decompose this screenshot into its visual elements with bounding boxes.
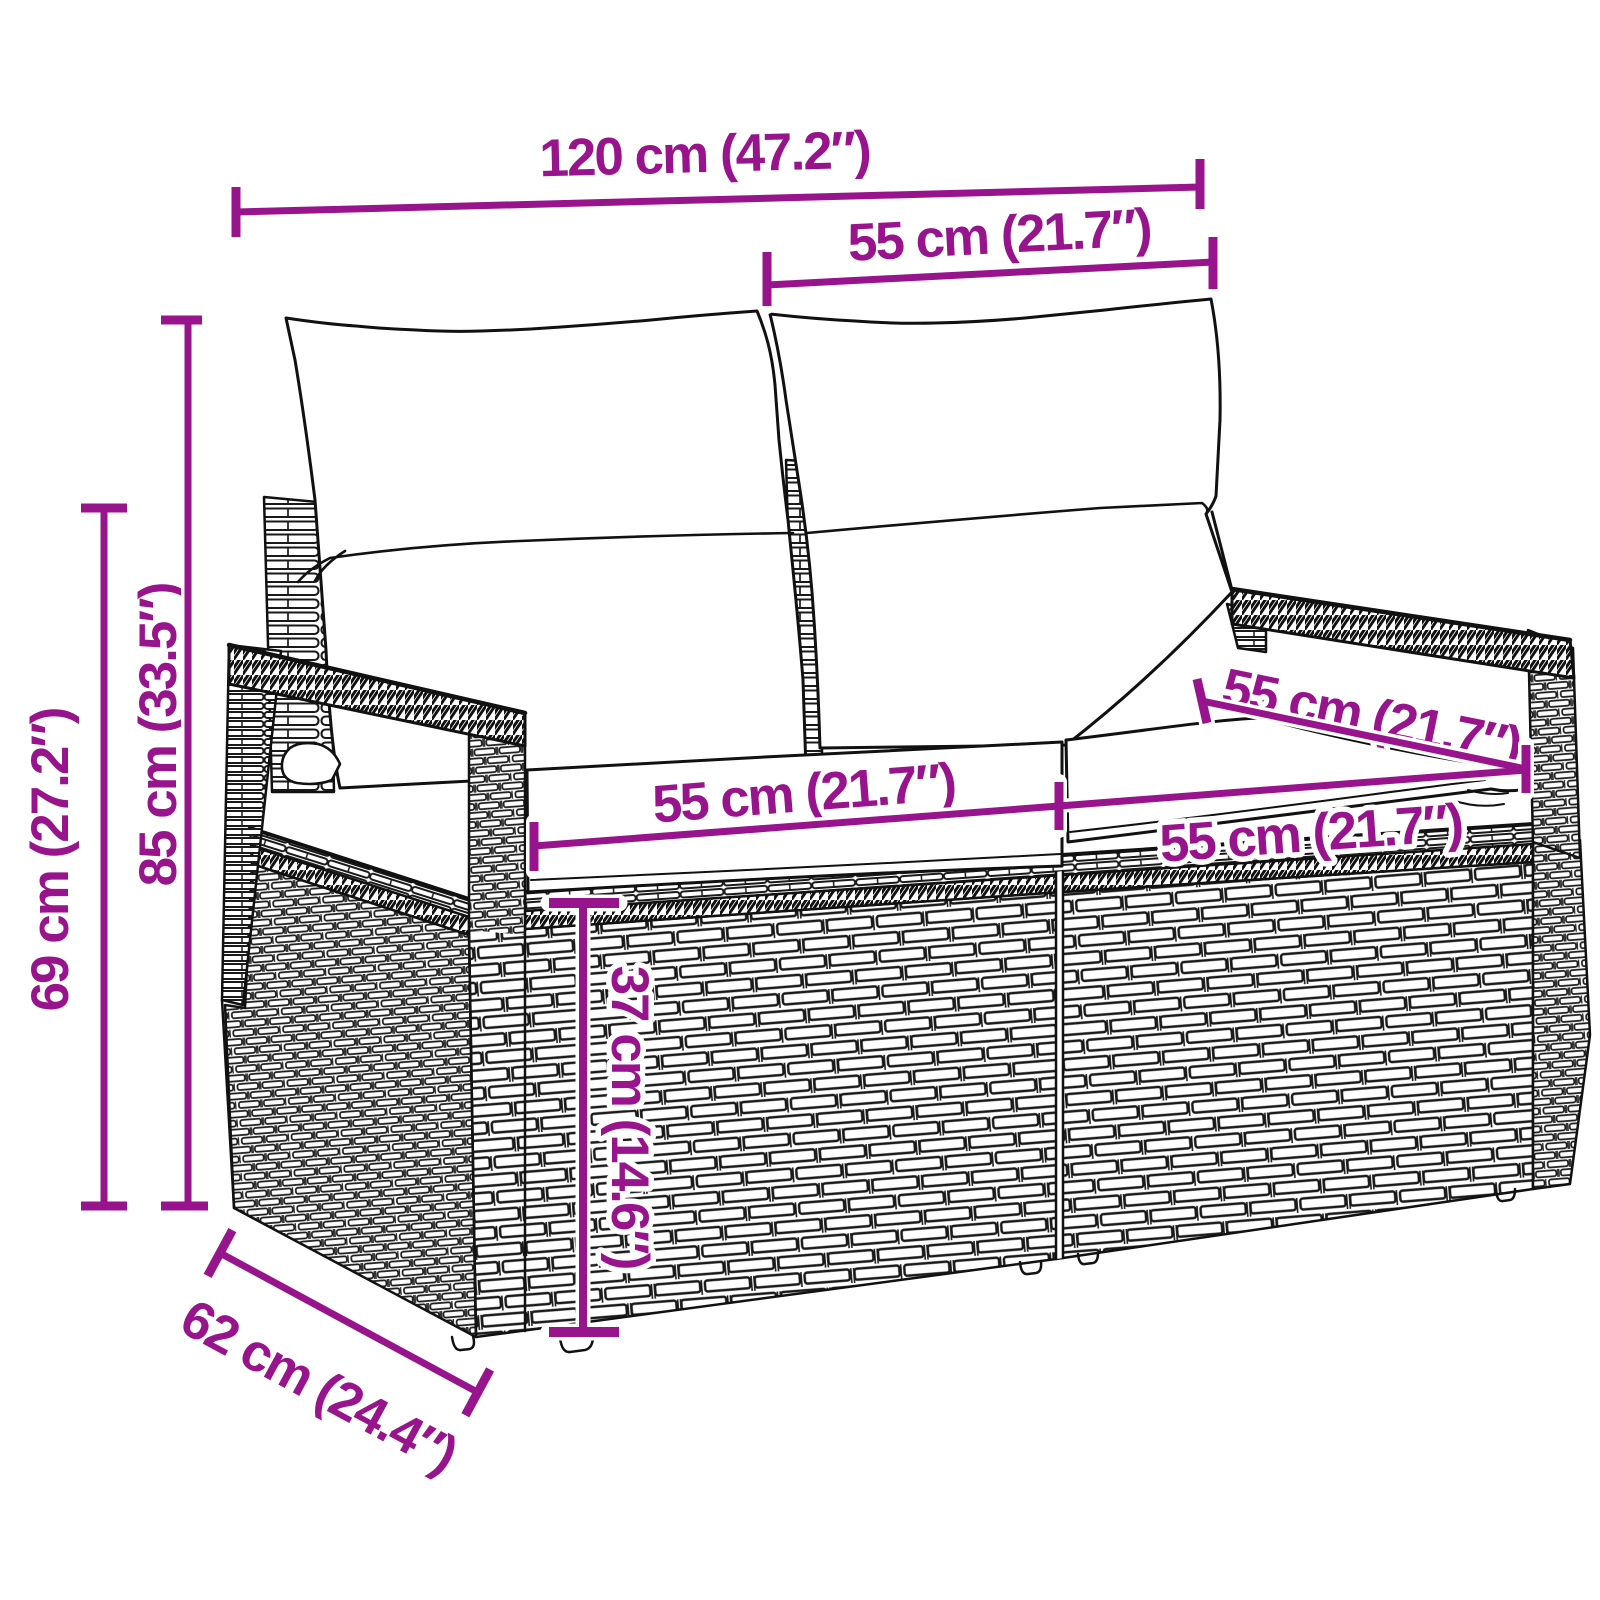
svg-text:69 cm (27.2″): 69 cm (27.2″)	[21, 708, 80, 1011]
svg-text:85 cm (33.5″): 85 cm (33.5″)	[129, 583, 188, 886]
svg-text:37 cm (14.6″): 37 cm (14.6″)	[600, 966, 659, 1269]
svg-text:120 cm (47.2″): 120 cm (47.2″)	[539, 121, 871, 189]
